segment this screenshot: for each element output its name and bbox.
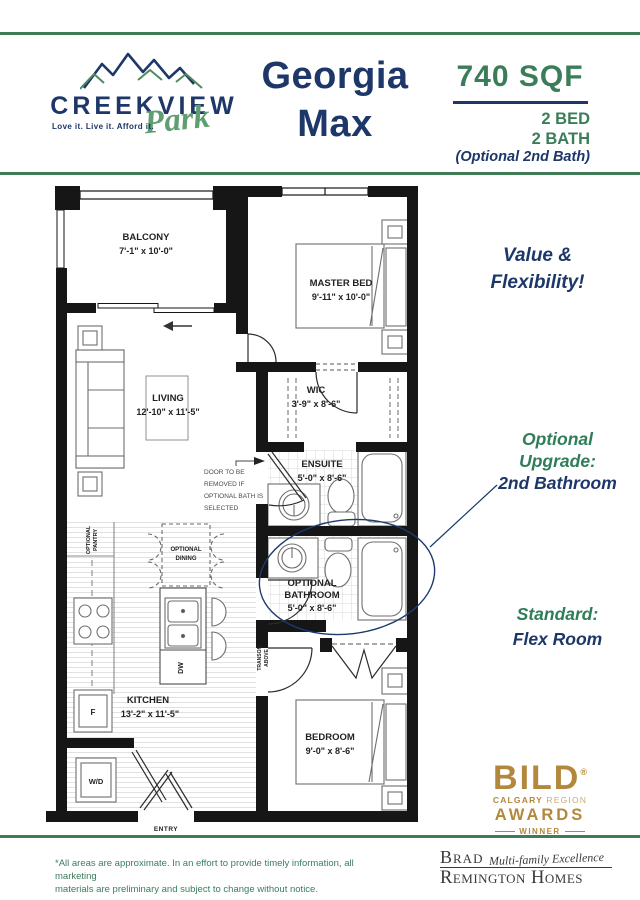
standard-line1: Standard:	[460, 602, 640, 627]
bild-text: BILD	[493, 759, 580, 797]
bild-calgary: CALGARY	[493, 795, 543, 805]
room-label-optbath-1: OPTIONAL	[287, 578, 336, 589]
label-pantry: OPTIONAL PANTRY	[86, 525, 99, 554]
room-label-wic: WIC	[307, 385, 326, 396]
winner-dash-right	[565, 831, 585, 832]
brh-tagline-script: Multi-family Excellence	[489, 850, 604, 868]
brh-top-row: Brad Multi-family Excellence	[440, 848, 612, 868]
disclaimer-line2: materials are preliminary and subject to…	[55, 883, 395, 896]
room-dims-balcony: 7'-1" x 10'-0"	[119, 246, 173, 256]
bild-region: REGION	[546, 795, 587, 805]
brh-remington-homes-text: Remington Homes	[440, 868, 612, 888]
label-dining-2: DINING	[176, 556, 197, 562]
label-pantry-1: OPTIONAL	[86, 525, 92, 554]
room-label-kitchen: KITCHEN	[127, 695, 169, 706]
room-label-living: LIVING	[152, 393, 184, 404]
door-note-line4: SELECTED	[204, 505, 239, 512]
balcony-arrow-icon	[163, 321, 192, 331]
room-dims-kitchen: 13'-2" x 11'-5"	[121, 709, 179, 719]
label-transom: TRANSOM ABOVE	[257, 645, 270, 670]
label-transom-2: ABOVE	[264, 648, 270, 666]
value-flexibility-text: Value & Flexibility!	[450, 242, 625, 296]
footer-rule	[0, 835, 640, 838]
upgrade-line1: Optional	[460, 428, 640, 450]
flyer-page: CREEKVIEW Park Love it. Live it. Afford …	[0, 0, 640, 900]
label-pantry-2: PANTRY	[93, 529, 99, 551]
label-dining-1: OPTIONAL	[171, 547, 202, 553]
value-line1: Value &	[450, 242, 625, 269]
standard-flex-text: Standard: Flex Room	[460, 602, 640, 652]
disclaimer-line1: *All areas are approximate. In an effort…	[55, 857, 395, 883]
door-note-line3: OPTIONAL BATH IS	[204, 493, 264, 500]
door-note-line1: DOOR TO BE	[204, 469, 245, 476]
room-dims-master-bed: 9'-11" x 10'-0"	[312, 292, 370, 302]
bild-wordmark: BILD®	[476, 756, 604, 794]
disclaimer-text: *All areas are approximate. In an effort…	[55, 857, 395, 896]
label-fridge: F	[91, 708, 96, 717]
value-line2: Flexibility!	[450, 269, 625, 296]
bild-awards-text: AWARDS	[476, 806, 604, 825]
optional-upgrade-text: Optional Upgrade: 2nd Bathroom	[460, 428, 640, 494]
bild-calgary-region: CALGARY REGION	[476, 795, 604, 805]
room-label-optbath-2: BATHROOM	[284, 590, 339, 601]
label-wd: W/D	[89, 777, 104, 786]
room-label-master-bed: MASTER BED	[310, 278, 373, 289]
room-label-bedroom: BEDROOM	[305, 732, 355, 743]
winner-dash-left	[495, 831, 515, 832]
bild-award-logo: BILD® CALGARY REGION AWARDS WINNER	[476, 756, 604, 836]
door-note-line2: REMOVED IF	[204, 481, 244, 488]
brad-remington-homes-logo: Brad Multi-family Excellence Remington H…	[440, 848, 612, 888]
sofa	[76, 350, 124, 468]
room-label-ensuite: ENSUITE	[301, 459, 342, 470]
room-dims-bedroom: 9'-0" x 8'-6"	[306, 746, 355, 756]
label-entry: ENTRY	[154, 826, 178, 833]
label-dw: DW	[178, 662, 185, 674]
brh-brad-text: Brad	[440, 848, 483, 866]
bild-registered-mark: ®	[580, 767, 587, 777]
room-label-balcony: BALCONY	[123, 232, 171, 243]
upgrade-line2: Upgrade:	[460, 450, 640, 472]
door-note: DOOR TO BE REMOVED IF OPTIONAL BATH IS S…	[204, 469, 264, 512]
room-dims-living: 12'-10" x 11'-5"	[136, 407, 199, 417]
label-transom-1: TRANSOM	[257, 645, 263, 670]
room-dims-ensuite: 5'-0" x 8'-6"	[298, 473, 347, 483]
upgrade-line3: 2nd Bathroom	[460, 472, 640, 494]
room-dims-optbath: 5'-0" x 8'-6"	[288, 603, 337, 613]
room-dims-wic: 3'-9" x 8'-6"	[292, 399, 341, 409]
standard-line2: Flex Room	[460, 627, 640, 652]
door-note-leader	[236, 457, 265, 466]
